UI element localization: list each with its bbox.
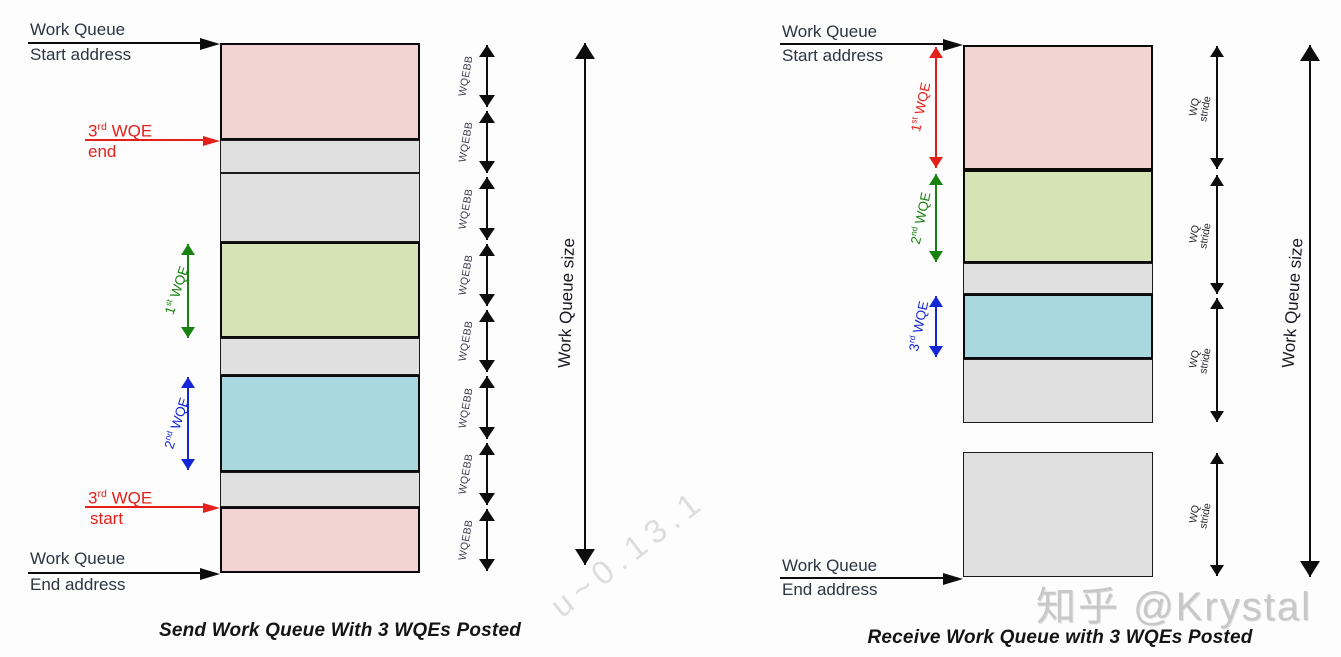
free-wqebb-block xyxy=(220,472,420,507)
wq-start-address-arrow xyxy=(780,43,943,45)
wq-stride-label: WQstride xyxy=(1187,500,1212,529)
wq-start-address-line2: Start address xyxy=(782,46,883,66)
wq-start-address-line1: Work Queue xyxy=(782,22,877,42)
wq-stride-label: WQstride xyxy=(1187,346,1212,375)
zhihu-watermark: 知乎 @Krystal xyxy=(1036,574,1312,632)
wqe-block-blue xyxy=(963,294,1153,359)
free-wqebb-block xyxy=(220,140,420,173)
wqe2-extent-arrow xyxy=(929,174,943,262)
receive-work-queue-diagram: Work Queue Start address 1st WQE 2nd WQE… xyxy=(0,0,1341,657)
wq-stride-label: WQstride xyxy=(1187,220,1212,249)
wq-end-address-line2: End address xyxy=(782,580,877,600)
wq-stride-arrow xyxy=(1210,298,1224,422)
wq-end-address-arrow xyxy=(780,577,943,579)
wq-stride-label: WQstride xyxy=(1187,93,1212,122)
wq-size-arrow xyxy=(1300,45,1320,577)
receive-wq-stack xyxy=(963,45,1153,577)
wqe-block-pink xyxy=(220,43,420,140)
send-wq-stack xyxy=(220,43,420,573)
free-wqebb-block xyxy=(963,452,1153,577)
wqe-block-green xyxy=(963,170,1153,263)
wqe-block-blue xyxy=(220,375,420,472)
wq-stride-arrow xyxy=(1210,46,1224,169)
free-wqebb-block xyxy=(220,173,420,242)
wqe-block-pink xyxy=(220,507,420,573)
wq-stride-arrow xyxy=(1210,453,1224,576)
wqe3-label: 3rd WQE xyxy=(905,299,932,352)
free-wqebb-block xyxy=(220,338,420,375)
wqe-block-green xyxy=(220,242,420,338)
wq-stride-arrow xyxy=(1210,175,1224,294)
wq-end-address-line1: Work Queue xyxy=(782,556,877,576)
wqe3-extent-arrow xyxy=(929,296,943,357)
wqe1-extent-arrow xyxy=(929,47,943,168)
wqe-block-pink xyxy=(963,45,1153,170)
free-wqebb-block xyxy=(963,263,1153,294)
free-wqebb-block xyxy=(963,359,1153,423)
